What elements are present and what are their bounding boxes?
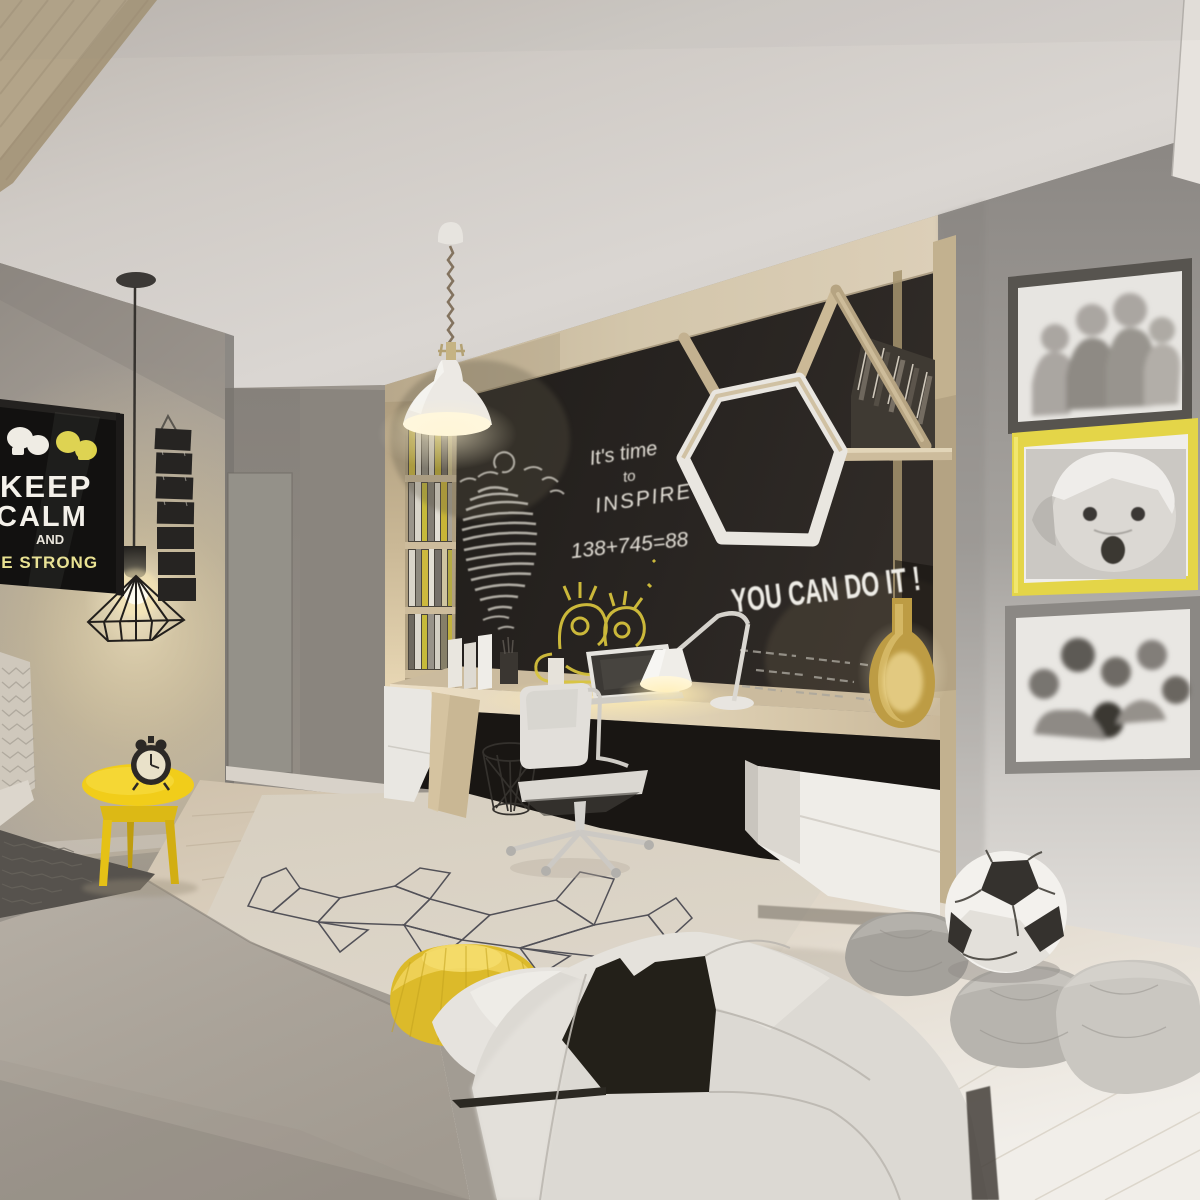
svg-text:to: to bbox=[622, 467, 637, 486]
